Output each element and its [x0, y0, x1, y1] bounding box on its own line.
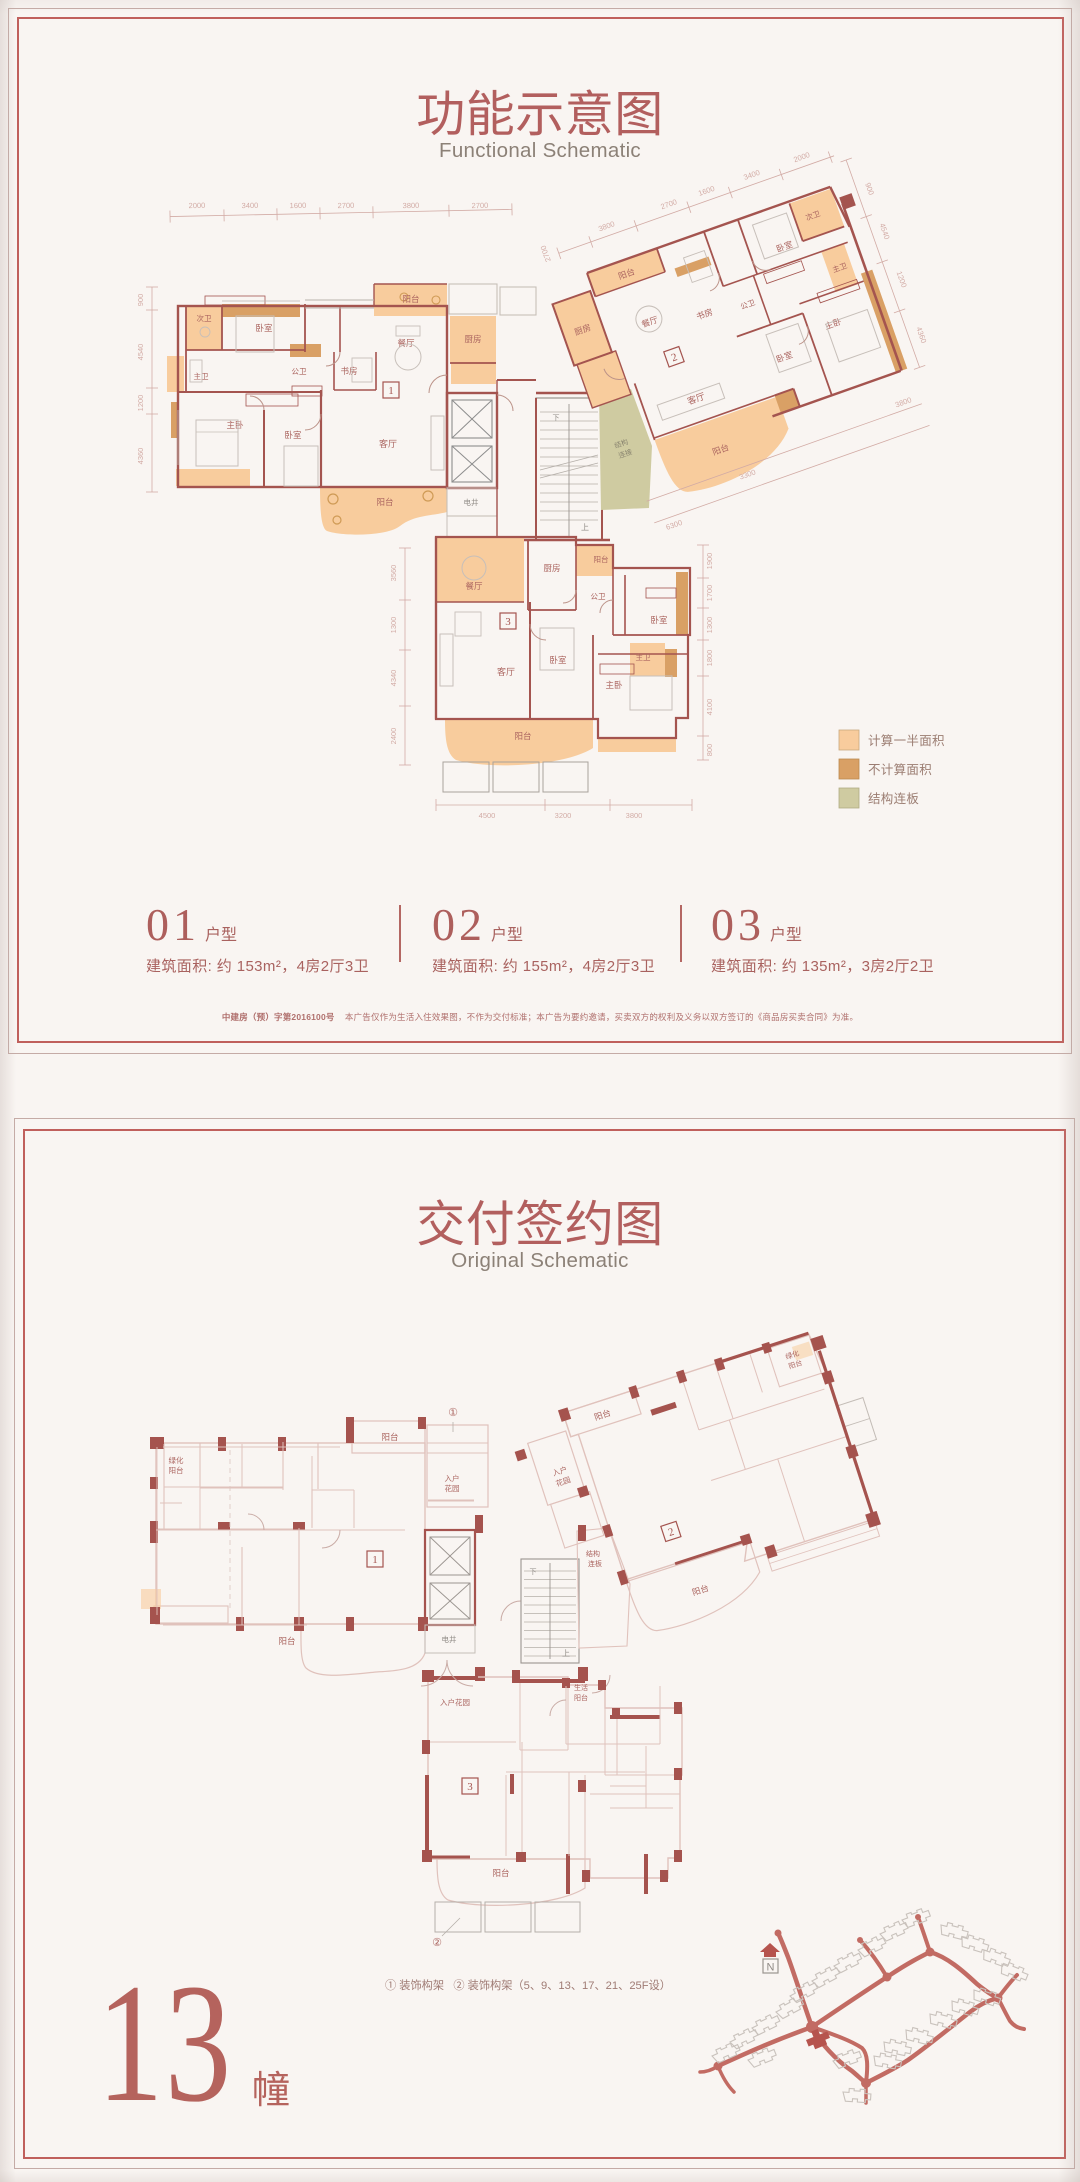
svg-text:绿化: 绿化: [169, 1455, 184, 1465]
svg-text:阳台: 阳台: [574, 1693, 588, 1702]
svg-text:下: 下: [530, 1568, 537, 1576]
svg-text:N: N: [767, 1962, 775, 1974]
svg-text:阳台: 阳台: [278, 1636, 295, 1646]
svg-text:②: ②: [432, 1937, 442, 1949]
svg-text:阳台: 阳台: [381, 1432, 398, 1442]
svg-text:①: ①: [448, 1407, 458, 1419]
svg-text:生活: 生活: [574, 1683, 588, 1692]
svg-text:阳台: 阳台: [169, 1465, 184, 1475]
svg-text:阳台: 阳台: [691, 1583, 710, 1598]
svg-text:阳台: 阳台: [593, 1407, 612, 1422]
svg-text:2: 2: [667, 1526, 676, 1539]
svg-text:结构: 结构: [586, 1549, 600, 1558]
svg-text:电井: 电井: [442, 1634, 457, 1644]
svg-text:1: 1: [372, 1554, 378, 1566]
svg-text:上: 上: [562, 1649, 570, 1658]
svg-text:入户: 入户: [445, 1473, 460, 1483]
svg-text:入户花园: 入户花园: [440, 1697, 470, 1707]
svg-text:3: 3: [467, 1781, 473, 1793]
svg-text:花园: 花园: [445, 1483, 460, 1493]
svg-text:阳台: 阳台: [492, 1868, 509, 1878]
svg-text:连板: 连板: [588, 1559, 602, 1568]
